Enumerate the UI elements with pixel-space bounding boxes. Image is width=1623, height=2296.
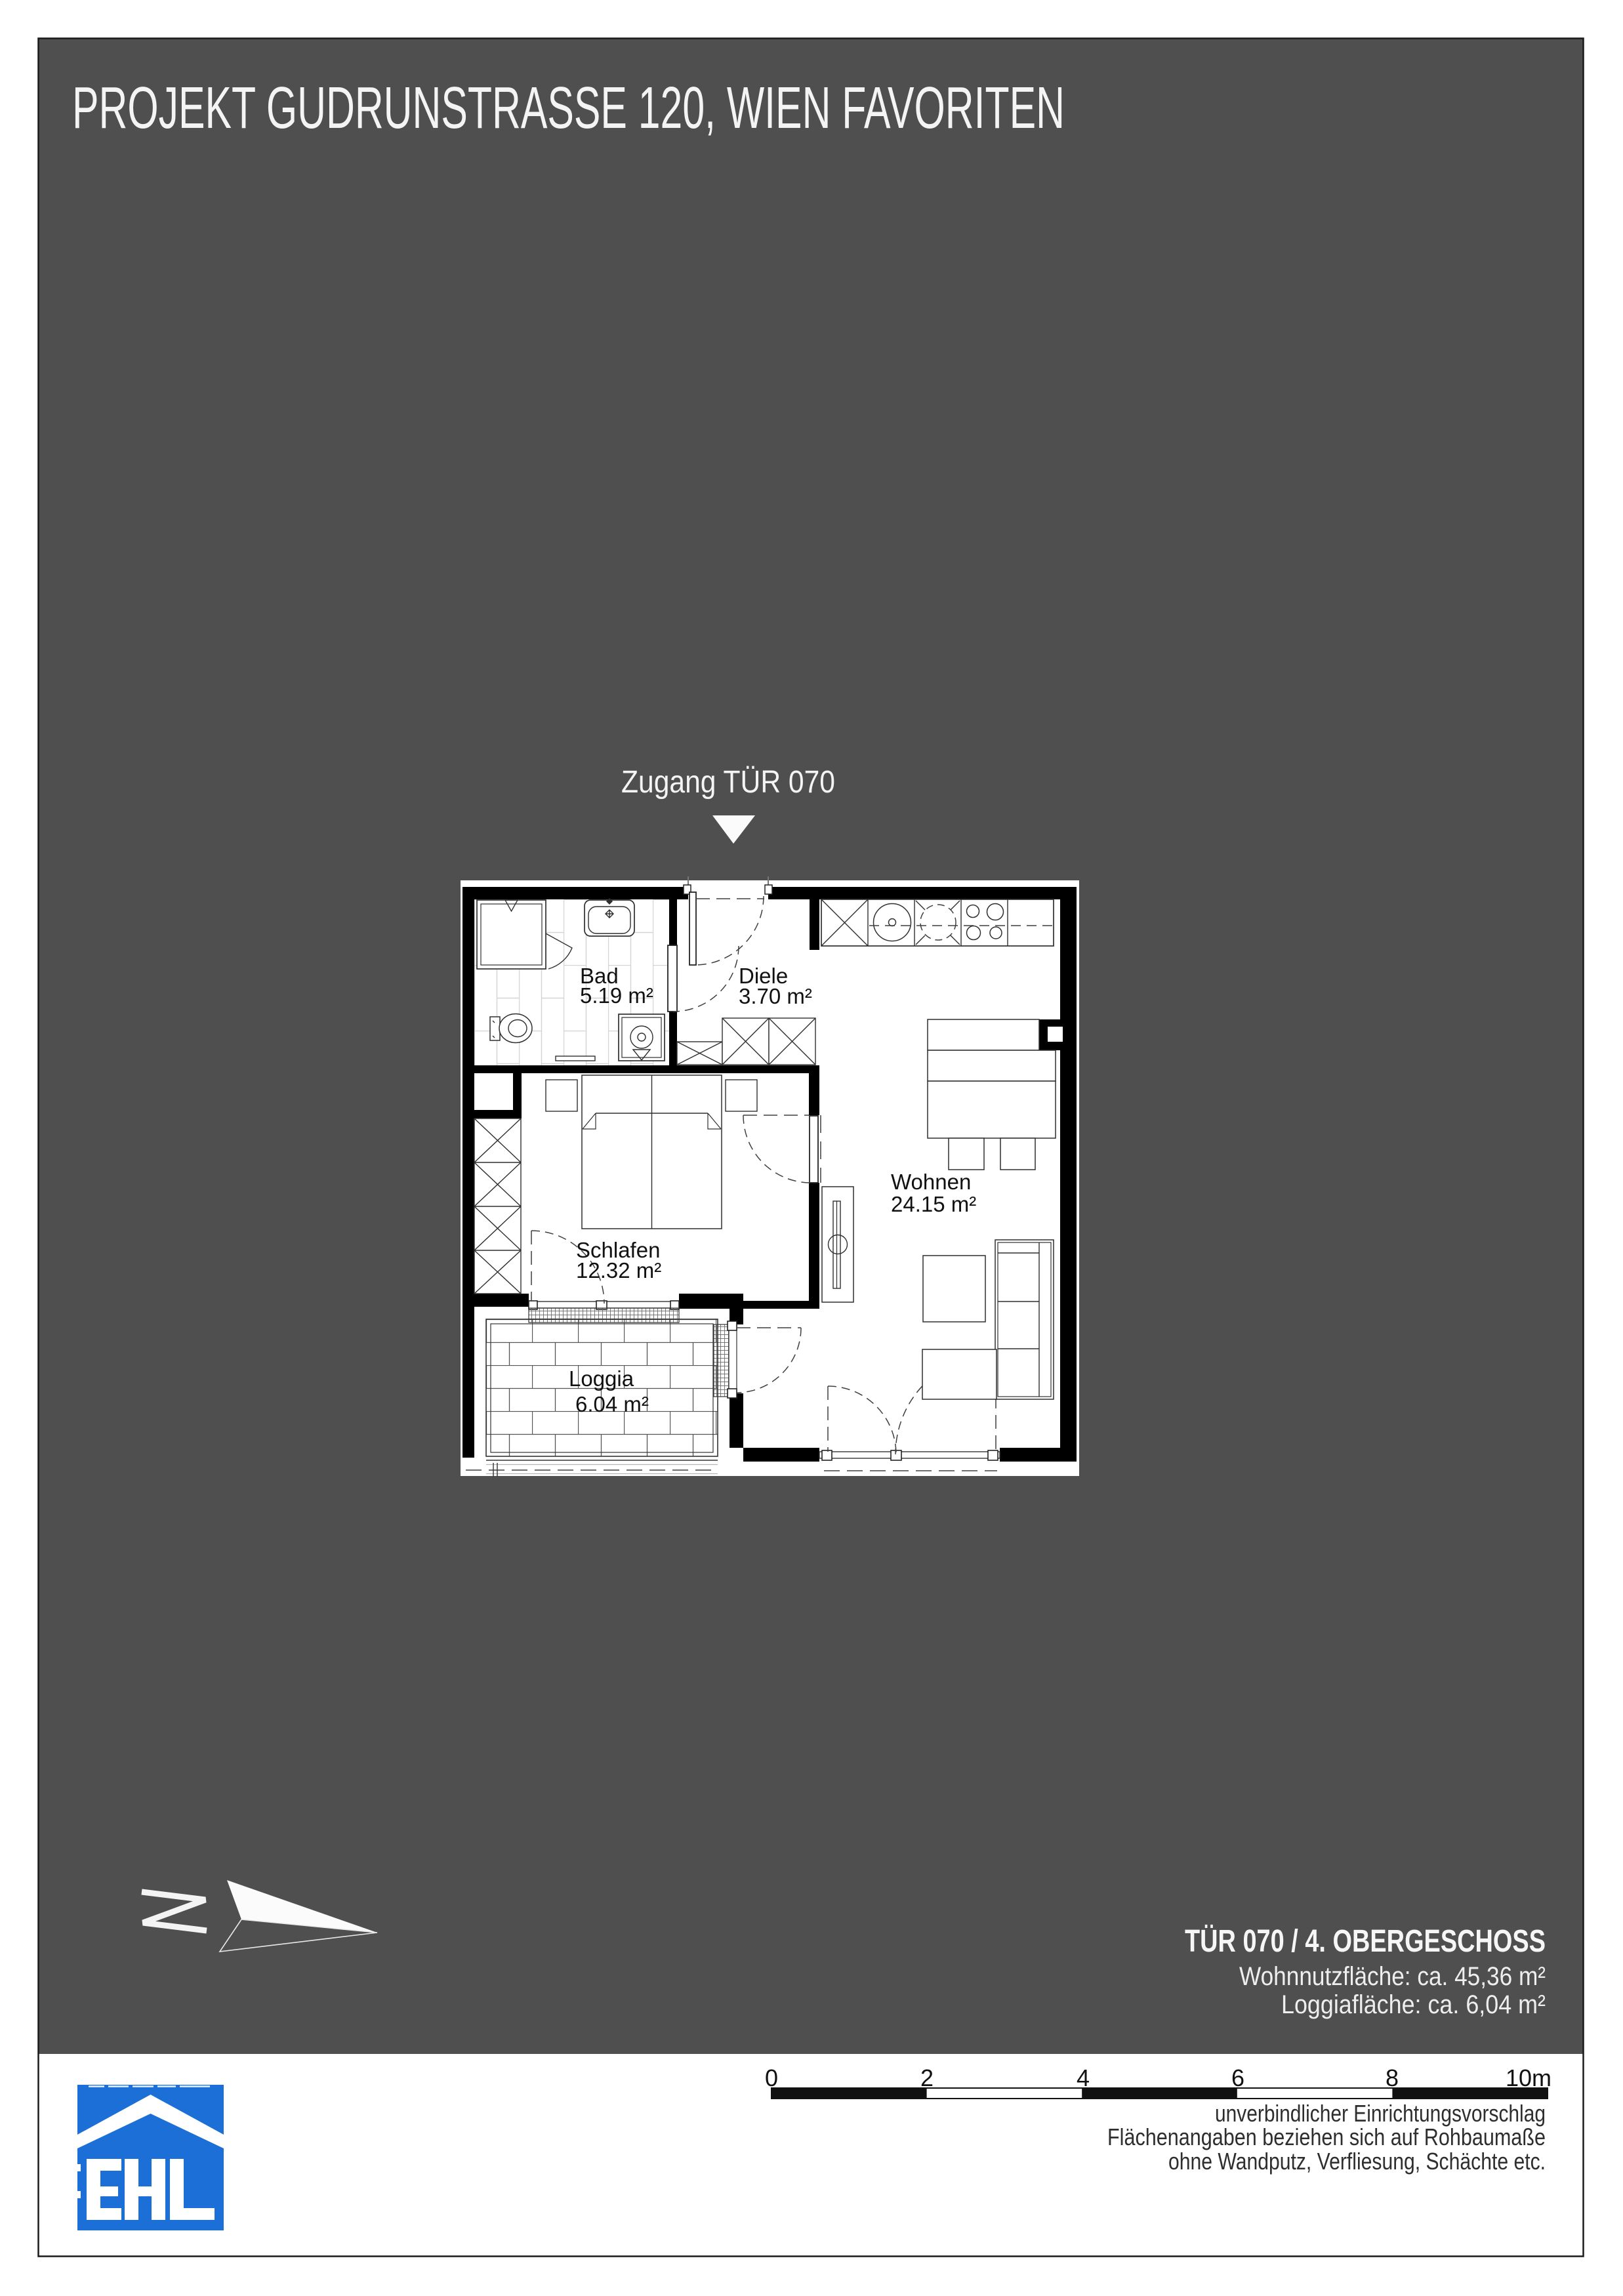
svg-text:3.70 m²: 3.70 m² bbox=[739, 984, 812, 1008]
svg-text:2: 2 bbox=[920, 2064, 934, 2091]
svg-text:Wohnnutzfläche: ca. 45,36 m²: Wohnnutzfläche: ca. 45,36 m² bbox=[1239, 1962, 1546, 1991]
svg-text:0: 0 bbox=[765, 2064, 778, 2091]
svg-text:4: 4 bbox=[1077, 2064, 1090, 2091]
svg-text:8: 8 bbox=[1386, 2064, 1399, 2091]
svg-text:Wohnen: Wohnen bbox=[891, 1170, 971, 1194]
svg-text:ohne Wandputz, Verfliesung, Sc: ohne Wandputz, Verfliesung, Schächte etc… bbox=[1168, 2148, 1546, 2175]
svg-text:24.15 m²: 24.15 m² bbox=[891, 1192, 976, 1216]
svg-text:Flächenangaben beziehen sich a: Flächenangaben beziehen sich auf Rohbaum… bbox=[1107, 2123, 1546, 2150]
svg-text:PROJEKT GUDRUNSTRASSE 120, WIE: PROJEKT GUDRUNSTRASSE 120, WIEN FAVORITE… bbox=[72, 75, 1065, 141]
svg-text:Loggia: Loggia bbox=[569, 1366, 634, 1391]
svg-text:unverbindlicher Einrichtungsvo: unverbindlicher Einrichtungsvorschlag bbox=[1215, 2100, 1546, 2127]
svg-text:6: 6 bbox=[1231, 2064, 1244, 2091]
svg-text:TÜR 070 / 4. OBERGESCHOSS: TÜR 070 / 4. OBERGESCHOSS bbox=[1185, 1924, 1546, 1959]
svg-text:Zugang TÜR 070: Zugang TÜR 070 bbox=[621, 765, 835, 800]
svg-text:Loggiafläche: ca. 6,04 m²: Loggiafläche: ca. 6,04 m² bbox=[1281, 1990, 1546, 2019]
svg-text:12.32 m²: 12.32 m² bbox=[576, 1258, 661, 1282]
svg-text:10m: 10m bbox=[1506, 2064, 1551, 2091]
svg-text:6.04 m²: 6.04 m² bbox=[575, 1392, 649, 1416]
svg-text:5.19 m²: 5.19 m² bbox=[580, 983, 653, 1008]
